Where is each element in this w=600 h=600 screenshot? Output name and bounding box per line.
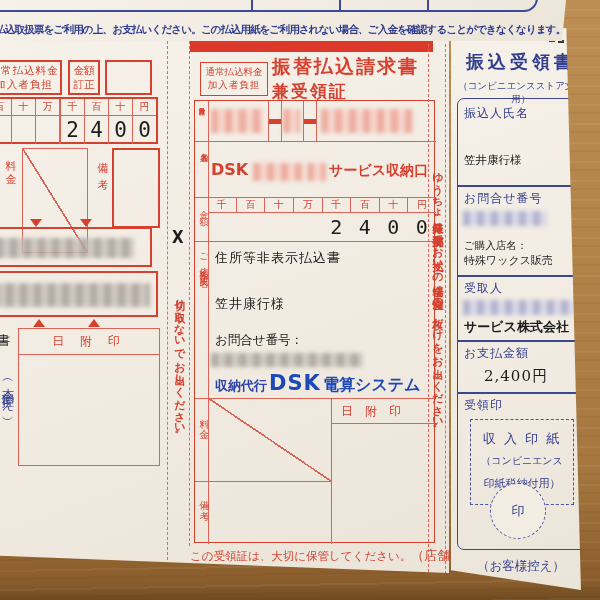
payment-slip-paper: 通常払込料金 加入者負担 金額 訂正 百 十 万 千 百 十 円 2	[0, 36, 449, 573]
middle-digit-headers: 千 百 十 万 千 百 十 円	[208, 197, 436, 213]
payment-amount-value: 2,400円	[484, 367, 548, 386]
grid-line	[195, 141, 436, 142]
redacted-account-number	[321, 109, 413, 133]
left-amount-digits: 2 4 0 0	[0, 116, 156, 144]
redacted-payee-name	[253, 163, 303, 181]
upper-form-table-corner	[0, 0, 538, 12]
redacted-address-line-2	[0, 283, 150, 307]
middle-amount-grid: 千 百 十 万 千 百 十 円 2 4 0 0	[208, 197, 436, 241]
upper-table-divider	[251, 0, 253, 11]
payment-amount-label: お支払金額	[464, 345, 529, 362]
payer-name-label: 振込人氏名	[464, 105, 529, 122]
cut-marker-triangle-icon	[33, 319, 45, 327]
photo-of-payment-slips: 振込受領書 （コンビニエンスストア支払用） 振込人氏名 笠井康行様 お問合せ番号…	[0, 0, 600, 600]
non-display-note: 住所等非表示払込書	[215, 249, 341, 267]
grid-line	[195, 241, 436, 242]
client-name: 笠井康行様	[215, 295, 285, 313]
receipt-title: 振込受領書	[459, 50, 583, 74]
agency-suffix: 電算システム	[323, 375, 421, 396]
account-dash-mark	[304, 119, 316, 124]
red-header-band	[190, 41, 433, 52]
middle-date-stamp-label: 日 附 印	[341, 403, 401, 420]
perforation-line	[167, 36, 168, 560]
redacted-inquiry-number	[211, 353, 363, 367]
payee-prefix: DSK	[211, 160, 248, 179]
grid-line	[331, 423, 436, 424]
redacted-address-line-1	[0, 238, 134, 258]
upper-table-divider	[339, 0, 341, 11]
upper-form-strip: 払込取扱票をご利用の上、お支払いください。この払込用紙をご利用されない場合、ご入…	[0, 0, 566, 41]
left-redacted-row-2-box	[0, 271, 158, 317]
grid-line	[281, 101, 282, 141]
section-divider	[458, 185, 586, 187]
receipt-body-box: 振込人氏名 笠井康行様 お問合せ番号 ご購入店名： 特殊ワックス販売 受取人 サ…	[457, 98, 587, 550]
perforation-line	[445, 44, 446, 574]
recipient-name: サービス株式会社	[464, 318, 569, 336]
client-label: ご依頼人住所氏名	[197, 247, 210, 395]
left-remarks-box	[112, 148, 160, 228]
middle-fee-line1: 通常払込料金	[201, 66, 267, 79]
inquiry-number-label: お問合せ番号	[464, 190, 543, 207]
section-divider	[458, 340, 586, 342]
section-divider	[458, 392, 586, 394]
top-payment-notice: 払込取扱票をご利用の上、お支払いください。この払込用紙をご利用されない場合、ご入…	[0, 23, 555, 37]
receipt-stamp-label: 受領印	[464, 397, 503, 414]
redacted-recipient-line	[463, 300, 575, 315]
payee-name-label: 加入者名	[197, 147, 208, 195]
left-amount-grid: 百 十 万 千 百 十 円 2 4 0 0	[0, 97, 158, 144]
redacted-payee-name	[307, 163, 326, 181]
store-name: 特殊ワックス販売	[464, 253, 553, 268]
perforation-line	[189, 36, 190, 546]
cut-marker-triangle-icon	[30, 219, 42, 227]
seal-circle-icon: 印	[490, 483, 546, 539]
upper-table-divider	[427, 0, 429, 11]
payee-suffix: サービス収納口	[329, 162, 428, 180]
left-remarks-label: 備考	[94, 154, 109, 230]
inquiry-number-label: お問合せ番号：	[215, 332, 303, 349]
cut-marker-triangle-icon	[88, 319, 100, 327]
redacted-account-symbol	[211, 109, 263, 133]
do-not-cut-notice: 切り取らないでお出しください。	[171, 291, 186, 481]
title-line1: 振替払込請求書	[272, 54, 436, 80]
customer-copy-label: （お客様控え）	[453, 558, 589, 575]
payer-name-value: 笠井康行様	[464, 153, 522, 168]
section-divider	[458, 275, 586, 277]
agency-prefix: 収納代行	[215, 377, 267, 395]
middle-form-title: 振替払込請求書 兼受領証	[272, 54, 436, 103]
revenue-stamp-line1: 収 入 印 紙	[471, 430, 573, 448]
redacted-inquiry-number	[463, 211, 547, 226]
left-fee-line1: 通常払込料金	[0, 64, 60, 78]
middle-amount-digits: 2 4 0 0	[208, 213, 436, 241]
middle-form-footer: この受領証は、大切に保管してください。（店舗控え）	[190, 547, 438, 565]
account-number-label: 口座記号番号	[197, 103, 206, 140]
seal-character: 印	[512, 502, 525, 520]
correction-line2: 訂正	[70, 78, 98, 92]
middle-remarks-label: 備考	[197, 493, 211, 537]
store-label: ご購入店名：	[464, 239, 527, 253]
left-date-stamp-box: 日 附 印	[18, 328, 160, 466]
left-redacted-row-1-box	[0, 227, 152, 267]
headquarters-copy-label: （本部控え）	[0, 374, 16, 509]
left-digit-headers: 百 十 万 千 百 十 円	[0, 99, 156, 116]
post-office-payment-notice: ゆうちょ銀行又は郵便局でお支払いの場合は左側の2枚だけをお出しください。	[429, 164, 444, 539]
middle-form-grid: 口座記号番号 加入者名 DSK サービス収納口 金額 千 百 十	[194, 100, 435, 543]
grid-line	[195, 481, 331, 482]
left-fee-note-box: 通常払込料金 加入者負担	[0, 60, 62, 95]
left-fee-line2: 加入者負担	[0, 78, 60, 92]
grid-line	[331, 398, 332, 544]
fee-diagonal-cell	[208, 398, 331, 481]
correction-line1: 金額	[70, 64, 98, 78]
left-fee-label: 料金	[2, 151, 17, 227]
account-dash-mark	[269, 119, 281, 124]
left-partial-character: 書	[0, 332, 10, 350]
revenue-stamp-line2: （コンビニエンス	[471, 454, 573, 468]
amount-correction-box: 金額 訂正	[68, 60, 100, 95]
redacted-account-digit	[283, 109, 300, 133]
recipient-label: 受取人	[464, 280, 503, 297]
middle-fee-note-box: 通常払込料金 加入者負担	[200, 62, 268, 96]
middle-fee-line2: 加入者負担	[201, 79, 267, 92]
agency-logo-dsk: DSK	[269, 371, 321, 395]
cut-x-mark: X	[172, 227, 184, 248]
correction-entry-box	[105, 60, 152, 95]
cut-marker-triangle-icon	[80, 219, 92, 227]
footer-keep-notice: この受領証は、大切に保管してください。	[190, 549, 411, 563]
grid-line	[316, 101, 317, 141]
left-date-stamp-label: 日 附 印	[19, 329, 159, 355]
